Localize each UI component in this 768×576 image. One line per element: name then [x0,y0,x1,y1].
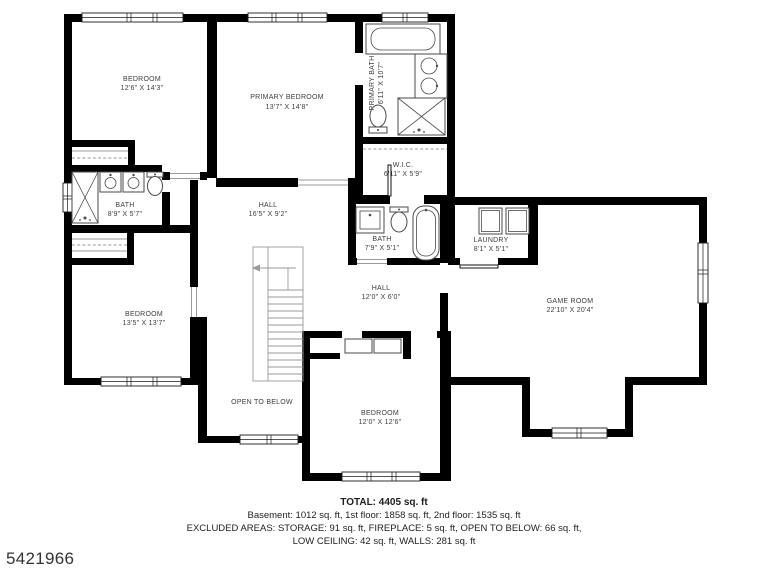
sink-icon [356,207,384,233]
room-dims-game-room: 22'10" X 20'4" [547,307,594,314]
room-label-laundry: LAUNDRY [473,237,508,244]
wic-door-leaf [388,165,391,196]
total-area-text: TOTAL: 4405 sq. ft [0,497,768,510]
excluded-areas-text-2: LOW CEILING: 42 sq. ft, WALLS: 281 sq. f… [0,536,768,549]
room-label-bedroom3: BEDROOM [361,410,399,417]
floor-areas-text: Basement: 1012 sq. ft, 1st floor: 1858 s… [0,510,768,523]
room-label-primary-bath: PRIMARY BATH [369,56,376,111]
window [552,428,607,438]
washer-icon [479,208,502,234]
room-label-open-to-below: OPEN TO BELOW [231,399,293,406]
window [382,13,428,22]
closet-door-icon [345,339,401,353]
room-label-bedroom2: BEDROOM [125,311,163,318]
window [63,183,72,212]
area-summary: TOTAL: 4405 sq. ft Basement: 1012 sq. ft… [0,497,768,549]
room-dims-bath2: 7'9" X 5'1" [365,245,400,252]
room-dims-bath1: 8'9" X 5'7" [108,211,143,218]
window [698,243,708,303]
room-label-bath2: BATH [372,236,391,243]
room-label-wic: W.I.C. [393,162,414,169]
room-dims-hall1: 16'5" X 9'2" [249,211,288,218]
bathtub-icon [413,206,439,260]
room-label-primary-bedroom: PRIMARY BEDROOM [250,94,324,101]
floorplan-page: BEDROOM 12'6" X 14'3" PRIMARY BEDROOM 13… [0,0,768,576]
floor-plan: BEDROOM 12'6" X 14'3" PRIMARY BEDROOM 13… [0,0,768,496]
shower-icon [398,98,445,135]
toilet-icon [390,207,408,232]
room-dims-hall2: 12'0" X 6'0" [362,294,401,301]
room-dims-bedroom2: 13'5" X 13'7" [123,320,166,327]
room-label-bedroom1: BEDROOM [123,76,161,83]
room-label-hall2: HALL [372,285,391,292]
room-dims-primary-bedroom: 13'7" X 14'8" [266,104,309,111]
toilet-icon [147,172,163,196]
stairs-icon [252,247,303,381]
room-dims-bedroom1: 12'6" X 14'3" [121,85,164,92]
room-dims-laundry: 8'1" X 5'1" [474,246,509,253]
window [342,472,420,481]
listing-id: 5421966 [6,549,74,569]
excluded-areas-text-1: EXCLUDED AREAS: STORAGE: 91 sq. ft, FIRE… [0,523,768,536]
room-label-bath1: BATH [115,202,134,209]
room-label-hall1: HALL [259,202,278,209]
room-dims-bedroom3: 12'0" X 12'6" [359,419,402,426]
sink-icon [415,54,447,98]
window [101,377,181,386]
shower-icon [72,172,98,223]
window [248,13,327,22]
window [240,435,298,444]
room-dims-wic: 6'11" X 5'9" [384,171,422,178]
bathtub-icon [366,24,440,54]
dryer-icon [506,208,529,234]
room-dims-primary-bath: 6'11" X 10'7" [378,62,385,105]
laundry-door-leaf [460,265,498,268]
sink-icon [100,172,144,192]
window [82,13,183,22]
room-label-game-room: GAME ROOM [547,298,594,305]
